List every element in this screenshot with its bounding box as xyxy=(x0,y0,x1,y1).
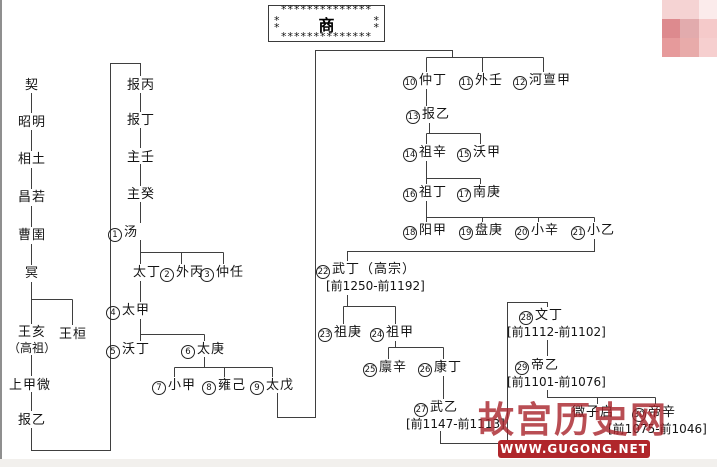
node-zhongding: 10仲丁 xyxy=(403,73,447,90)
node-zuxin: 14祖辛 xyxy=(403,145,447,162)
node-xiaojia: 7小甲 xyxy=(152,378,196,395)
king-name: 报乙 xyxy=(422,107,450,122)
node-baoyi-1: 报乙 xyxy=(18,413,46,429)
king-number: 14 xyxy=(403,148,417,162)
node-wairen: 11外壬 xyxy=(459,73,503,90)
king-number: 22 xyxy=(316,265,330,279)
king-name: 汤 xyxy=(124,225,138,240)
node-zhongren: 3仲任 xyxy=(200,265,244,282)
king-name: 沃丁 xyxy=(122,342,150,357)
node-woding: 5沃丁 xyxy=(106,342,150,359)
king-number: 11 xyxy=(459,76,473,90)
node-wuding: 22武丁（高宗） [前1250-前1192] xyxy=(316,262,425,293)
node-linxin: 25廪辛 xyxy=(363,360,407,377)
king-number: 29 xyxy=(515,361,529,375)
king-name: 盘庚 xyxy=(475,223,503,238)
node-baoyi-2: 13报乙 xyxy=(406,107,450,124)
king-number: 18 xyxy=(403,226,417,240)
king-number: 20 xyxy=(515,226,529,240)
king-name: 祖丁 xyxy=(419,185,447,200)
dynasty-title-box: ************** * * 商 * * ************** xyxy=(268,5,385,42)
king-name: 河亶甲 xyxy=(529,73,571,88)
king-name: 南庚 xyxy=(473,185,501,200)
node-baobing: 报丙 xyxy=(127,78,155,94)
king-number: 19 xyxy=(459,226,473,240)
person-name: 王亥 xyxy=(6,325,58,341)
king-number: 17 xyxy=(457,188,471,202)
node-zujia: 24祖甲 xyxy=(370,325,414,342)
king-name: 帝乙 xyxy=(531,358,559,373)
king-number: 24 xyxy=(370,328,384,342)
thumbnail-cell xyxy=(662,38,680,57)
corner-thumbnail xyxy=(662,0,717,57)
stars-border-left: * * xyxy=(274,17,280,31)
thumbnail-cell xyxy=(699,19,717,38)
king-number: 4 xyxy=(106,306,120,320)
node-kangding: 26康丁 xyxy=(418,360,462,377)
page-bottom-strip xyxy=(0,459,717,467)
thumbnail-cell xyxy=(680,38,698,57)
king-number: 1 xyxy=(108,228,122,242)
node-baoding: 报丁 xyxy=(127,113,155,129)
shang-dynasty-genealogy-diagram: ************** * * 商 * * ************** … xyxy=(0,0,717,467)
king-name: 雍己 xyxy=(218,378,246,393)
stars-border-bottom: ************** xyxy=(269,33,384,41)
king-name: 祖辛 xyxy=(419,145,447,160)
node-nangeng: 17南庚 xyxy=(457,185,501,202)
node-tang: 1汤 xyxy=(108,225,138,242)
node-hedanjia: 12河亶甲 xyxy=(513,73,571,90)
person-alias: （高祖） xyxy=(6,341,58,355)
node-taiwu: 9太戊 xyxy=(250,378,294,395)
stars-border-right: * * xyxy=(373,17,379,31)
node-taijia: 4太甲 xyxy=(106,303,150,320)
node-taigeng: 6太庚 xyxy=(181,342,225,359)
thumbnail-cell xyxy=(680,0,698,19)
king-name: 祖甲 xyxy=(386,325,414,340)
watermark-site-name: 故宫历史网 xyxy=(478,391,668,443)
watermark-url: WWW.GUGONG.NET xyxy=(500,442,648,456)
node-yongji: 8雍己 xyxy=(202,378,246,395)
node-shangjiawei: 上甲微 xyxy=(9,378,51,394)
thumbnail-cell xyxy=(662,19,680,38)
king-number: 7 xyxy=(152,381,166,395)
node-wending: 28文丁 [前1112-前1102] xyxy=(507,308,606,339)
node-xiaoyi: 21小乙 xyxy=(571,223,615,240)
reign-dates: [前1250-前1192] xyxy=(326,279,425,293)
king-number: 13 xyxy=(406,110,420,124)
king-name: 祖庚 xyxy=(334,325,362,340)
node-qi: 契 xyxy=(25,78,39,94)
king-number: 28 xyxy=(519,311,533,325)
king-name: 阳甲 xyxy=(419,223,447,238)
king-number: 9 xyxy=(250,381,264,395)
king-name: 太戊 xyxy=(266,378,294,393)
watermark: 故宫历史网 WWW.GUGONG.NET xyxy=(476,388,717,464)
node-yangjia: 18阳甲 xyxy=(403,223,447,240)
king-name: 武乙 xyxy=(430,400,458,415)
king-number: 2 xyxy=(160,268,174,282)
king-number: 21 xyxy=(571,226,585,240)
node-waibing: 2外丙 xyxy=(160,265,204,282)
king-name: 仲丁 xyxy=(419,73,447,88)
king-number: 25 xyxy=(363,363,377,377)
king-number: 23 xyxy=(318,328,332,342)
king-name: 小甲 xyxy=(168,378,196,393)
node-wojia: 15沃甲 xyxy=(457,145,501,162)
king-number: 8 xyxy=(202,381,216,395)
node-zhuren: 主壬 xyxy=(127,150,155,166)
king-name: 太甲 xyxy=(122,303,150,318)
watermark-banner: WWW.GUGONG.NET xyxy=(498,440,650,458)
reign-dates: [前1112-前1102] xyxy=(507,325,606,339)
king-name: 太庚 xyxy=(197,342,225,357)
king-name: 仲任 xyxy=(216,265,244,280)
node-pangeng: 19盘庚 xyxy=(459,223,503,240)
node-zhugui: 主癸 xyxy=(127,187,155,203)
thumbnail-cell xyxy=(699,0,717,19)
node-wanghuan: 王桓 xyxy=(59,327,87,343)
node-diyi: 29帝乙 [前1101-前1076] xyxy=(507,358,606,389)
node-xiangtu: 相土 xyxy=(18,152,46,168)
king-name: 沃甲 xyxy=(473,145,501,160)
node-zuding: 16祖丁 xyxy=(403,185,447,202)
thumbnail-cell xyxy=(662,0,680,19)
thumbnail-cell xyxy=(699,38,717,57)
king-name: 廪辛 xyxy=(379,360,407,375)
king-number: 10 xyxy=(403,76,417,90)
king-number: 12 xyxy=(513,76,527,90)
king-name: 小乙 xyxy=(587,223,615,238)
node-zugeng: 23祖庚 xyxy=(318,325,362,342)
king-number: 16 xyxy=(403,188,417,202)
king-name: 武丁（高宗） xyxy=(332,262,416,277)
node-xiaoxin: 20小辛 xyxy=(515,223,559,240)
node-ming: 冥 xyxy=(25,266,39,282)
king-number: 5 xyxy=(106,345,120,359)
king-name: 外壬 xyxy=(475,73,503,88)
thumbnail-cell xyxy=(680,19,698,38)
king-number: 15 xyxy=(457,148,471,162)
node-changruo: 昌若 xyxy=(18,190,46,206)
king-number: 26 xyxy=(418,363,432,377)
node-wanghai: 王亥 （高祖） xyxy=(6,325,58,355)
reign-dates: [前1101-前1076] xyxy=(507,375,606,389)
king-number: 3 xyxy=(200,268,214,282)
king-name: 康丁 xyxy=(434,360,462,375)
king-name: 小辛 xyxy=(531,223,559,238)
node-caoyu: 曹圉 xyxy=(18,228,46,244)
node-zhaoming: 昭明 xyxy=(18,115,46,131)
king-name: 文丁 xyxy=(535,308,563,323)
king-number: 6 xyxy=(181,345,195,359)
window-left-edge xyxy=(0,0,2,467)
king-number: 27 xyxy=(414,403,428,417)
node-taiding: 太丁 xyxy=(133,265,161,281)
